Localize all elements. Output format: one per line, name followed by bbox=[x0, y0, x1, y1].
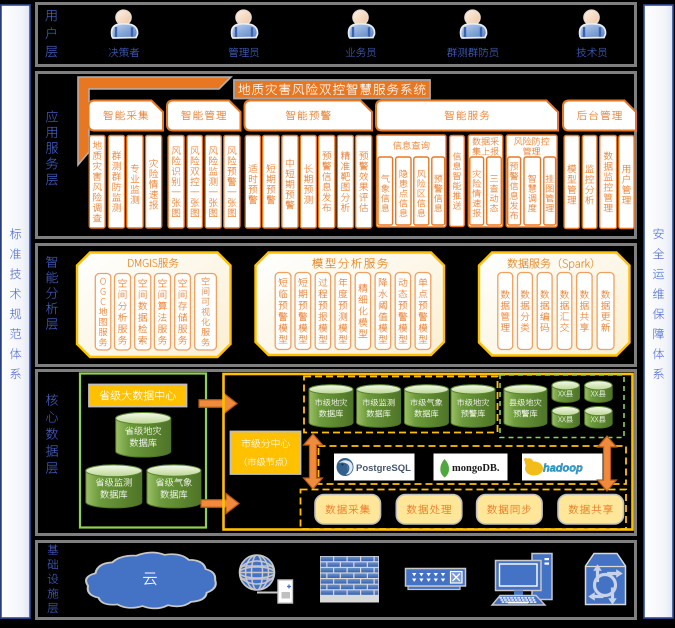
svg-text:PostgreSQL: PostgreSQL bbox=[356, 463, 411, 474]
svg-text:mongoDB.: mongoDB. bbox=[452, 463, 500, 474]
svg-text:hadoop: hadoop bbox=[543, 463, 583, 475]
